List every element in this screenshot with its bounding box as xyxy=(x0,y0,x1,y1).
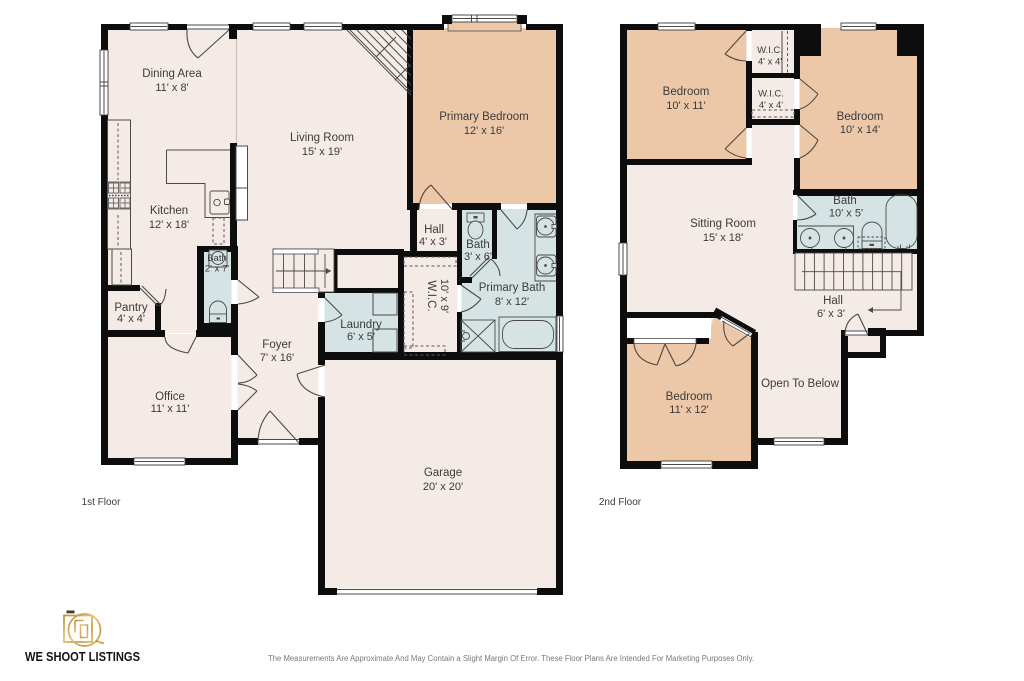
svg-text:Bath: Bath xyxy=(833,195,857,207)
svg-text:Bath: Bath xyxy=(207,253,227,264)
svg-text:12' x 16': 12' x 16' xyxy=(464,125,504,137)
svg-text:Hall: Hall xyxy=(424,224,444,236)
svg-text:Bedroom: Bedroom xyxy=(663,86,710,98)
svg-text:2' x 7': 2' x 7' xyxy=(205,264,229,275)
svg-text:15' x 18': 15' x 18' xyxy=(703,232,743,244)
svg-text:11' x 8': 11' x 8' xyxy=(155,82,188,94)
svg-text:11' x 11': 11' x 11' xyxy=(151,403,190,415)
svg-text:15' x 19': 15' x 19' xyxy=(302,146,342,158)
svg-text:6' x 3': 6' x 3' xyxy=(817,308,845,320)
svg-text:10' x 9': 10' x 9' xyxy=(438,279,450,313)
svg-text:3' x 6': 3' x 6' xyxy=(464,251,492,263)
svg-text:Garage: Garage xyxy=(424,467,462,479)
svg-text:Sitting Room: Sitting Room xyxy=(690,218,756,230)
svg-text:10' x 5': 10' x 5' xyxy=(829,208,863,220)
svg-text:10' x 14': 10' x 14' xyxy=(840,124,880,136)
svg-text:Office: Office xyxy=(155,391,185,403)
svg-text:12' x 18': 12' x 18' xyxy=(149,219,189,231)
svg-text:4' x 3': 4' x 3' xyxy=(419,236,447,248)
svg-text:Bath: Bath xyxy=(466,239,490,251)
svg-text:Open To Below: Open To Below xyxy=(761,378,839,390)
svg-text:Laundry: Laundry xyxy=(340,319,382,331)
svg-text:W.I.C.: W.I.C. xyxy=(757,45,783,56)
svg-text:11' x 12': 11' x 12' xyxy=(669,404,708,416)
svg-text:20' x 20': 20' x 20' xyxy=(423,481,463,493)
svg-text:Foyer: Foyer xyxy=(262,339,292,351)
svg-text:Bedroom: Bedroom xyxy=(837,111,884,123)
svg-text:Dining Area: Dining Area xyxy=(142,68,202,80)
svg-text:Hall: Hall xyxy=(823,295,843,307)
svg-text:2nd Floor: 2nd Floor xyxy=(599,497,642,508)
svg-text:Primary Bedroom: Primary Bedroom xyxy=(439,111,528,123)
svg-text:Primary Bath: Primary Bath xyxy=(479,282,545,294)
svg-text:The Measurements Are Approxima: The Measurements Are Approximate And May… xyxy=(268,654,754,663)
svg-text:4' x 4': 4' x 4' xyxy=(758,57,782,68)
svg-text:1st Floor: 1st Floor xyxy=(82,497,122,508)
svg-text:W.I.C.: W.I.C. xyxy=(425,280,437,311)
svg-text:4' x 4': 4' x 4' xyxy=(117,313,145,325)
svg-text:7' x 16': 7' x 16' xyxy=(260,352,294,364)
svg-text:Bedroom: Bedroom xyxy=(666,391,713,403)
svg-text:8' x 12': 8' x 12' xyxy=(495,296,529,308)
svg-text:10' x 11': 10' x 11' xyxy=(666,100,705,112)
svg-text:W.I.C.: W.I.C. xyxy=(758,89,784,100)
svg-text:WE SHOOT LISTINGS: WE SHOOT LISTINGS xyxy=(25,649,140,664)
svg-text:Living Room: Living Room xyxy=(290,132,354,144)
svg-text:4' x 4': 4' x 4' xyxy=(759,100,783,111)
svg-text:6' x 5': 6' x 5' xyxy=(347,331,375,343)
svg-text:Kitchen: Kitchen xyxy=(150,205,188,217)
